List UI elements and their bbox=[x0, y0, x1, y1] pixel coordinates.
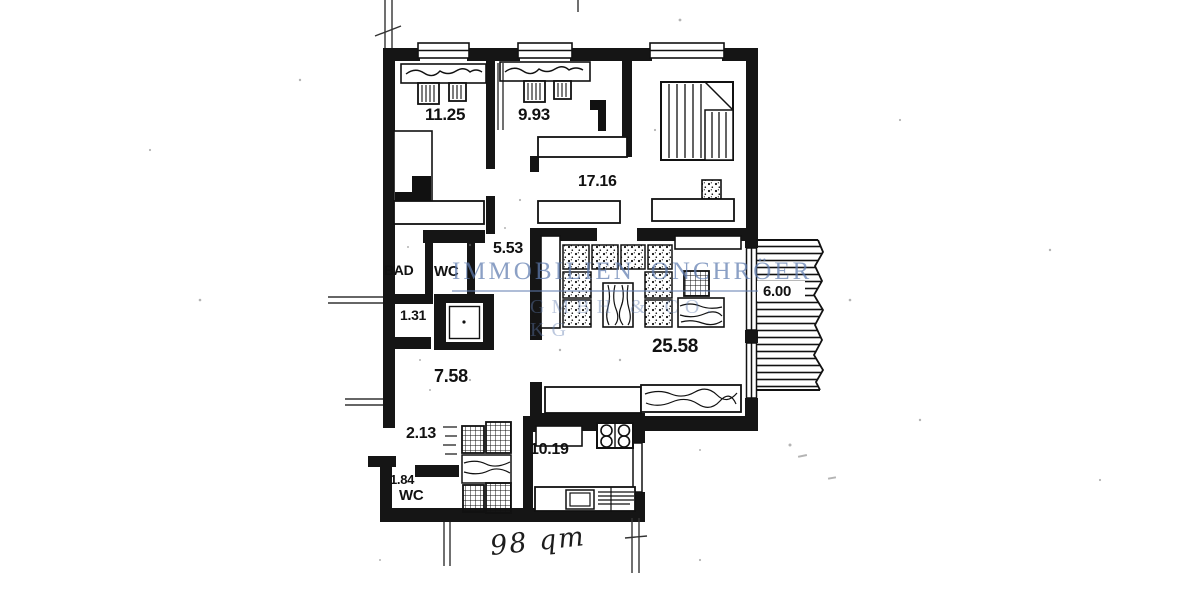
room-label-wc2: WC bbox=[399, 487, 423, 504]
watermark: IMMOBILIEN ONCHRÖER GMBH & CO. KG bbox=[452, 256, 772, 342]
room-label-bath: BAD bbox=[384, 262, 413, 278]
room-label-bedroom-2: 9.93 bbox=[518, 105, 550, 125]
room-label-wc2-size: 1.84 bbox=[390, 472, 414, 487]
watermark-word-right: ONCHRÖER bbox=[651, 258, 813, 286]
room-label-hallway: 7.58 bbox=[434, 366, 468, 387]
room-label-living-dining: 17.16 bbox=[578, 173, 617, 191]
watermark-subline: GMBH & CO. KG bbox=[530, 296, 772, 342]
floor-plan-page: 11.25 9.93 17.16 5.53 BAD WC 1.31 7.58 2… bbox=[0, 0, 1200, 600]
room-label-corridor: 2.13 bbox=[406, 425, 436, 443]
watermark-word-left: IMMOBILIEN bbox=[452, 258, 635, 286]
room-label-kitchen: 10.19 bbox=[530, 441, 569, 459]
room-label-storage: 1.31 bbox=[400, 307, 426, 323]
furniture-kitchen bbox=[535, 423, 635, 511]
furniture-bedroom-1 bbox=[394, 64, 486, 224]
room-label-bedroom-1: 11.25 bbox=[425, 105, 465, 125]
watermark-rule bbox=[452, 290, 758, 292]
